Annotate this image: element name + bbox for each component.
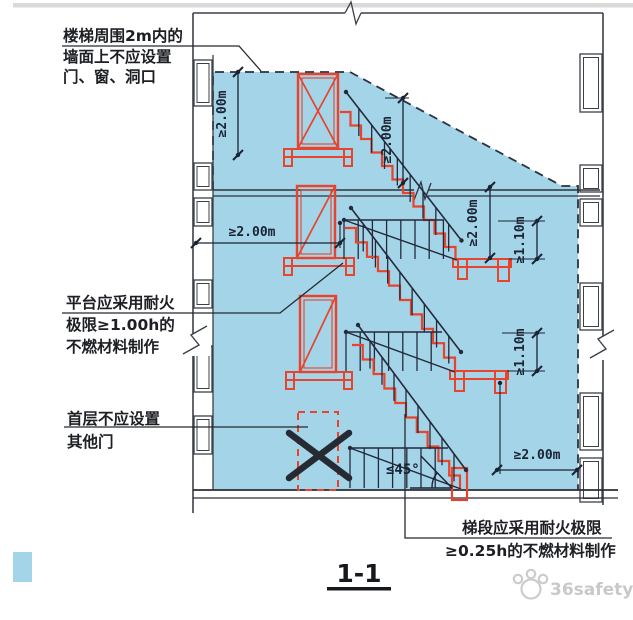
annotation-text: 不燃材料制作 bbox=[66, 337, 160, 356]
left-wall-windows bbox=[194, 60, 212, 454]
annotation-platform: 平台应采用耐火 极限≥1.00h的 不燃材料制作 bbox=[66, 293, 175, 356]
handrail-dot bbox=[344, 90, 348, 94]
handrail-dot bbox=[459, 238, 463, 242]
annotation-text: 梯段应采用耐火极限 bbox=[462, 518, 602, 537]
drawing-canvas: ≥2.00m≥2.00m≥2.00m≥1.10m≥1.10m≥2.00m≥2.0… bbox=[0, 0, 633, 620]
stair-section-diagram: ≥2.00m≥2.00m≥2.00m≥1.10m≥1.10m≥2.00m≥2.0… bbox=[0, 0, 633, 620]
right-wall-windows bbox=[580, 54, 602, 502]
watermark-text: 36safety bbox=[550, 580, 633, 600]
handrail-dot bbox=[356, 323, 360, 327]
annotation-flight: 梯段应采用耐火极限 ≥0.25h的不燃材料制作 bbox=[445, 518, 616, 560]
dimension-label: ≥2.00m bbox=[229, 225, 276, 240]
handrail-dot bbox=[459, 350, 463, 354]
angle-label: ≤45° bbox=[386, 462, 420, 478]
annotation-text: 楼梯周围2m内的 bbox=[63, 26, 183, 45]
section-title: 1-1 bbox=[327, 559, 391, 591]
top-divider bbox=[13, 3, 633, 8]
handrail-dot bbox=[349, 206, 353, 210]
section-label: 1-1 bbox=[336, 559, 381, 588]
legend-zone-swatch bbox=[13, 552, 32, 582]
annotation-text: 其他门 bbox=[67, 432, 114, 451]
dim-dot bbox=[498, 381, 502, 385]
dimension-label: ≥2.00m bbox=[215, 90, 230, 137]
dimension-label: ≥2.00m bbox=[466, 199, 481, 246]
section-underline bbox=[327, 587, 391, 591]
dimension-label: ≥2.00m bbox=[380, 116, 395, 163]
annotation-zone: 楼梯周围2m内的 墙面上不应设置 门、窗、洞口 bbox=[63, 26, 183, 86]
dim-dot bbox=[338, 221, 342, 225]
dimension-label: ≥1.10m bbox=[513, 216, 528, 263]
annotation-text: 平台应采用耐火 bbox=[66, 293, 175, 312]
annotation-text: 门、窗、洞口 bbox=[63, 67, 156, 86]
annotation-text: 极限≥1.00h的 bbox=[66, 315, 175, 334]
dimension-label: ≥2.00m bbox=[514, 448, 561, 463]
annotation-first-floor: 首层不应设置 其他门 bbox=[67, 409, 160, 451]
annotation-text: 墙面上不应设置 bbox=[63, 47, 172, 66]
annotation-text: ≥0.25h的不燃材料制作 bbox=[445, 541, 616, 560]
annotation-text: 首层不应设置 bbox=[67, 409, 160, 428]
watermark: 36safety bbox=[514, 570, 633, 600]
handrail-dot bbox=[464, 468, 468, 472]
dimension-label: ≥1.10m bbox=[513, 328, 528, 375]
paw-logo-icon bbox=[514, 570, 547, 599]
